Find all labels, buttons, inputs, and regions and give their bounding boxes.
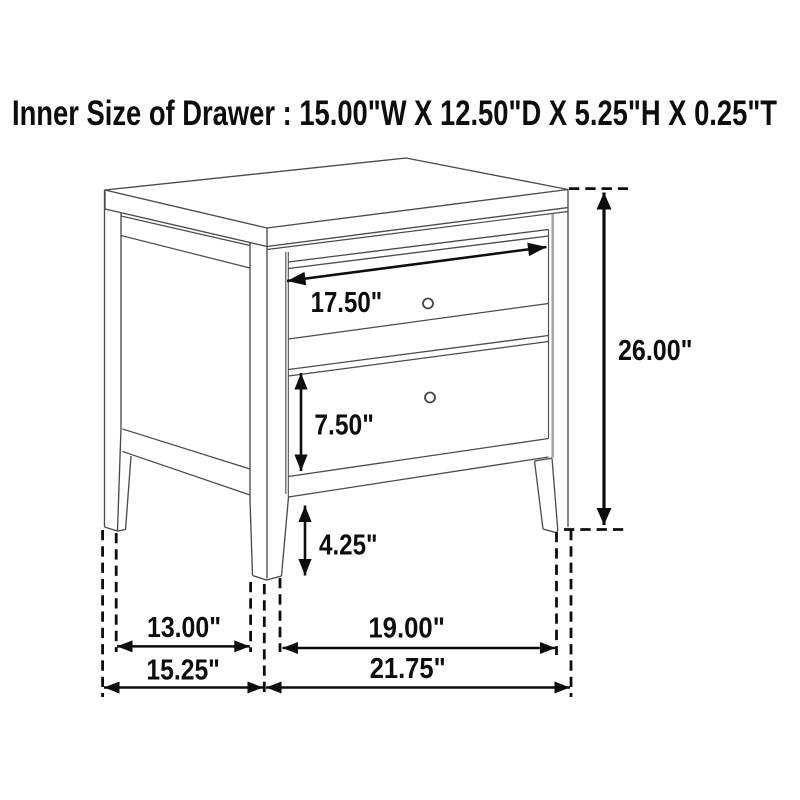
svg-text:13.00": 13.00" xyxy=(147,612,221,644)
svg-text:Inner Size of Drawer : 15.00"W: Inner Size of Drawer : 15.00"W X 12.50"D… xyxy=(12,94,777,133)
svg-text:21.75": 21.75" xyxy=(370,653,446,685)
svg-text:15.25": 15.25" xyxy=(146,654,220,686)
svg-text:7.50": 7.50" xyxy=(314,409,374,441)
svg-text:26.00": 26.00" xyxy=(618,335,693,367)
svg-text:4.25": 4.25" xyxy=(319,530,378,562)
svg-text:19.00": 19.00" xyxy=(368,612,445,644)
svg-text:17.50": 17.50" xyxy=(311,287,383,319)
